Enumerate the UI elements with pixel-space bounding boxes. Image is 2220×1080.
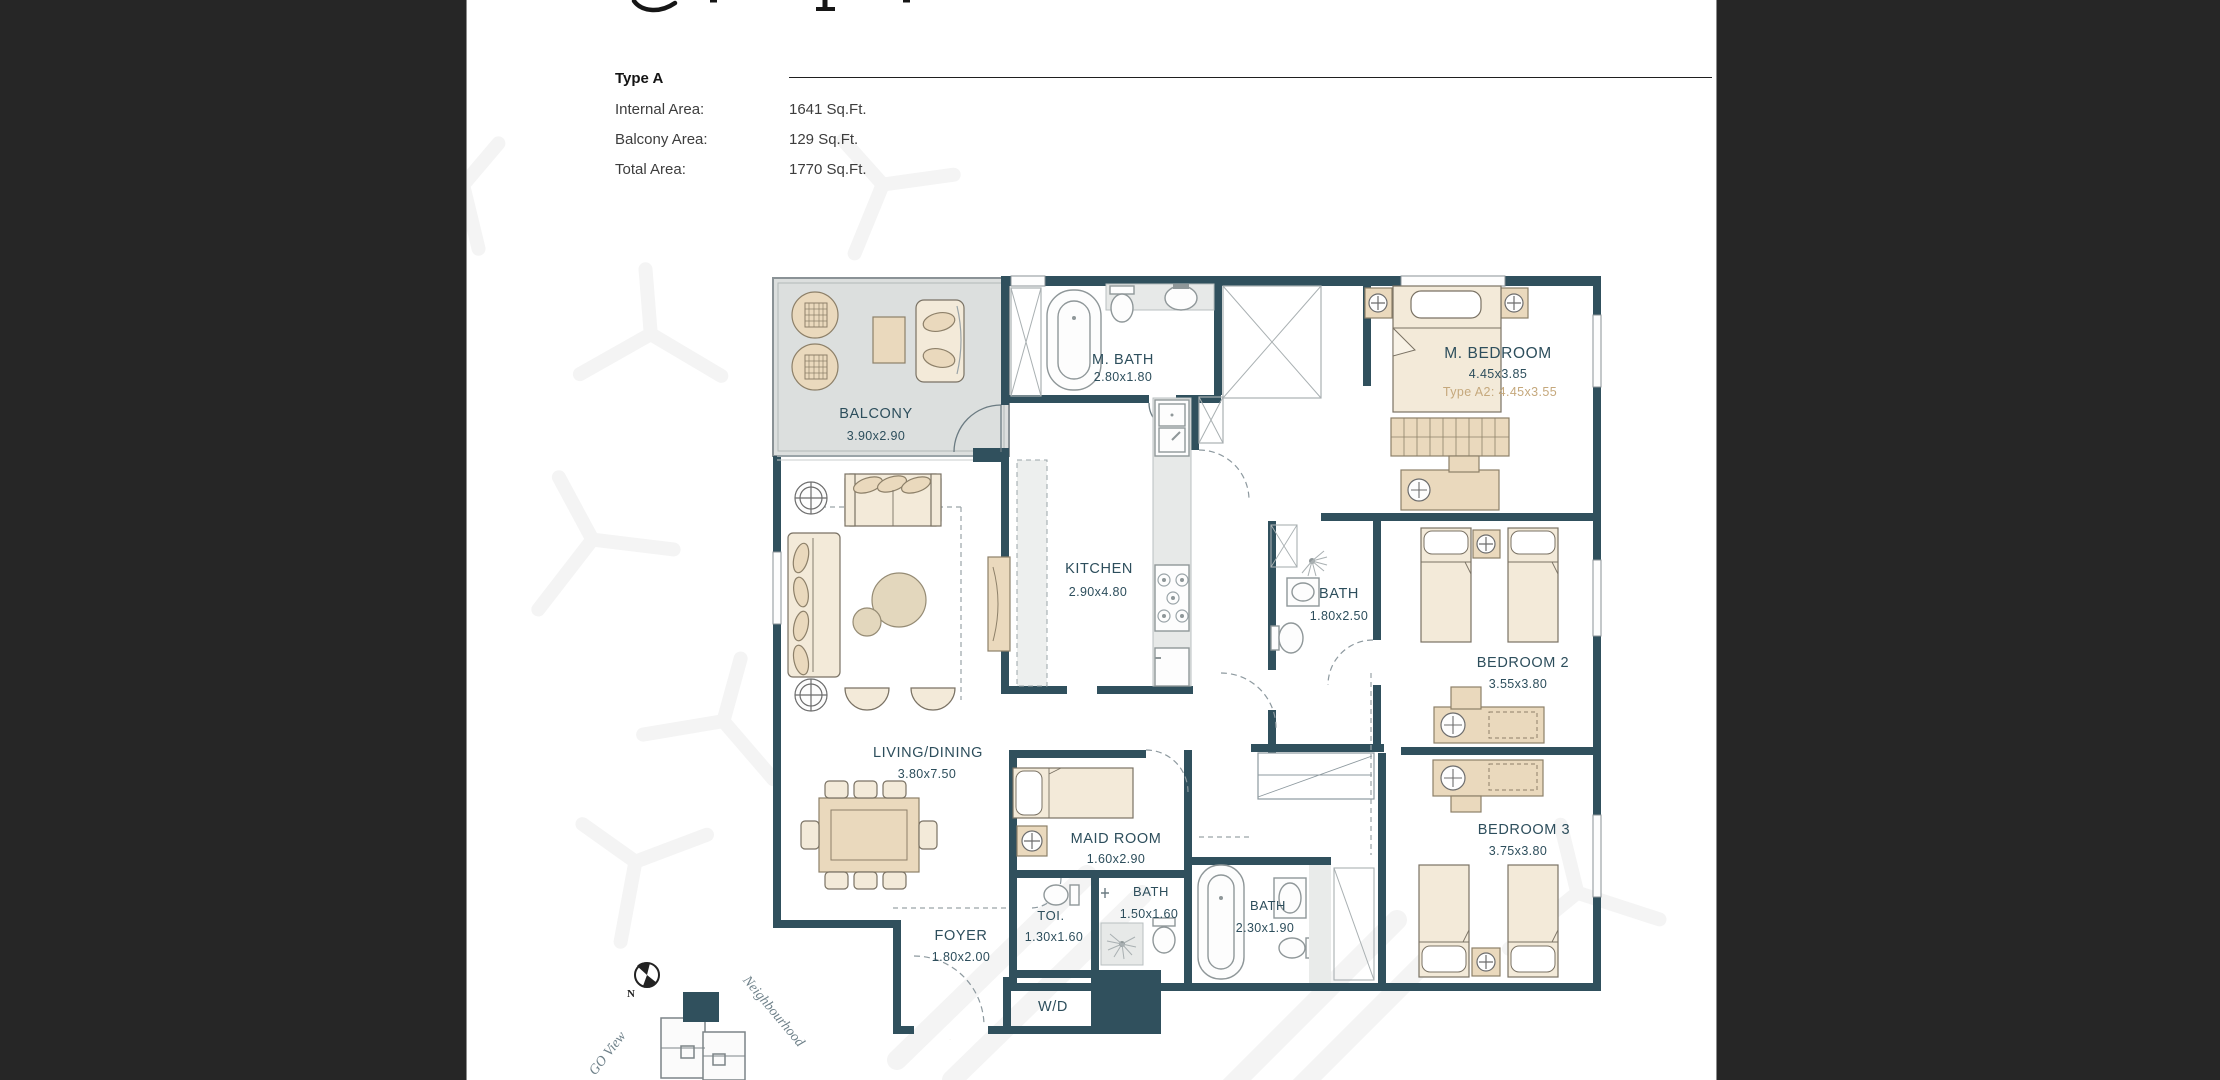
bedroom3-furniture xyxy=(1419,760,1558,977)
room-dim: 2.80x1.80 xyxy=(1094,370,1153,384)
side-table-icon xyxy=(853,608,881,636)
room-label: BALCONY xyxy=(839,406,913,422)
room-label: BATH xyxy=(1250,898,1286,913)
floor-lamp-icon xyxy=(795,482,827,514)
faucet-mark xyxy=(1101,888,1109,898)
armchair-icon xyxy=(845,688,889,710)
floor-plan: BALCONY 3.90x2.90 M. BATH 2.80x1.80 M. B… xyxy=(761,270,1611,1040)
bath-counter xyxy=(1309,865,1331,983)
living-furniture xyxy=(788,473,1010,889)
room-label: M. BEDROOM xyxy=(1444,345,1552,362)
unit-type-title: Type A xyxy=(615,70,663,87)
room-dim: 1.80x2.00 xyxy=(932,950,991,964)
counter-dashed xyxy=(1017,460,1047,686)
spec-value: 1770 Sq.Ft. xyxy=(789,161,867,178)
armchair-icon xyxy=(911,688,955,710)
sink-icon xyxy=(1287,578,1319,606)
bath3-fixtures xyxy=(1198,753,1374,983)
bench-icon xyxy=(1391,418,1509,456)
room-dim: 3.55x3.80 xyxy=(1489,677,1548,691)
room-dim: 3.75x3.80 xyxy=(1489,844,1548,858)
room-label: BEDROOM 2 xyxy=(1477,655,1569,671)
toi-fixtures xyxy=(1044,885,1079,905)
room-dim: 3.90x2.90 xyxy=(847,429,906,443)
sofa-icon xyxy=(788,533,840,677)
lamp-icon xyxy=(1477,953,1495,971)
room-label: FOYER xyxy=(935,928,988,944)
cropped-title-fragments xyxy=(467,0,1067,20)
single-bed-icon xyxy=(1508,528,1558,642)
spec-label: Total Area: xyxy=(615,161,686,178)
toilet-icon xyxy=(1153,918,1175,953)
room-dim: 1.80x2.50 xyxy=(1310,609,1369,623)
sofa-icon xyxy=(845,473,941,526)
spec-label: Internal Area: xyxy=(615,101,704,118)
room-label: BEDROOM 3 xyxy=(1478,822,1570,838)
balcony-chair-icon xyxy=(792,344,838,390)
tv-unit-icon xyxy=(988,557,1010,651)
room-label: BATH xyxy=(1133,884,1169,899)
room-label: M. BATH xyxy=(1092,352,1154,368)
single-bed-icon xyxy=(1508,865,1558,977)
balcony-bench-icon xyxy=(916,300,964,382)
highlighted-unit xyxy=(683,992,719,1022)
fridge-icon xyxy=(1155,648,1189,686)
bedroom2-furniture xyxy=(1421,528,1558,743)
spec-value: 129 Sq.Ft. xyxy=(789,131,858,148)
room-label: BATH xyxy=(1319,586,1359,602)
single-bed-icon xyxy=(1013,768,1133,818)
compass-north-label: N xyxy=(627,988,635,1000)
room-dim-alt: Type A2: 4.45x3.55 xyxy=(1443,385,1557,399)
spec-row-internal-area: Internal Area: 1641 Sq.Ft. xyxy=(615,101,1035,119)
room-dim: 3.80x7.50 xyxy=(898,767,957,781)
spec-label: Balcony Area: xyxy=(615,131,708,148)
single-bed-icon xyxy=(1419,865,1469,977)
balcony-chair-icon xyxy=(792,292,838,338)
kitchen-sink-icon xyxy=(1155,400,1189,456)
desk-icon xyxy=(1401,456,1499,510)
desk-icon xyxy=(1433,760,1543,812)
linen-closet-icon xyxy=(1258,753,1374,799)
shower-icon xyxy=(1302,551,1327,576)
room-dim: 2.30x1.90 xyxy=(1236,921,1295,935)
room-dim: 1.60x2.90 xyxy=(1087,852,1146,866)
lamp-icon xyxy=(1022,831,1042,851)
toilet-icon xyxy=(1271,623,1303,653)
room-label: MAID ROOM xyxy=(1071,831,1162,847)
desk-icon xyxy=(1434,687,1544,743)
balcony-table-icon xyxy=(873,317,905,363)
floor-lamp-icon xyxy=(795,679,827,711)
stove-icon xyxy=(1155,565,1189,631)
room-dim: 1.30x1.60 xyxy=(1025,930,1084,944)
document-viewer: Type A Internal Area: 1641 Sq.Ft. Balcon… xyxy=(0,0,2220,1080)
floorplan-page: Type A Internal Area: 1641 Sq.Ft. Balcon… xyxy=(466,0,1717,1080)
header-rule xyxy=(789,77,1712,78)
kitchen-fixtures xyxy=(1017,398,1191,686)
wardrobe-icon xyxy=(1334,868,1374,980)
maid-bath-fixtures xyxy=(1101,888,1175,965)
room-label: W/D xyxy=(1038,999,1068,1015)
spec-row-total-area: Total Area: 1770 Sq.Ft. xyxy=(615,161,1035,179)
dining-table-icon xyxy=(801,781,937,889)
lamp-icon xyxy=(1505,294,1523,312)
room-dim: 2.90x4.80 xyxy=(1069,585,1128,599)
lamp-icon xyxy=(1369,294,1387,312)
room-dim: 4.45x3.85 xyxy=(1469,367,1528,381)
spec-value: 1641 Sq.Ft. xyxy=(789,101,867,118)
toilet-icon xyxy=(1110,286,1134,322)
lamp-icon xyxy=(1477,535,1495,553)
room-label: KITCHEN xyxy=(1065,561,1133,577)
room-dim: 1.50x1.60 xyxy=(1120,907,1179,921)
single-bed-icon xyxy=(1421,528,1471,642)
spec-row-balcony-area: Balcony Area: 129 Sq.Ft. xyxy=(615,131,1035,149)
site-road-label: GO View xyxy=(586,1029,630,1079)
room-label: TOI. xyxy=(1037,908,1064,923)
room-label: LIVING/DINING xyxy=(873,745,983,761)
